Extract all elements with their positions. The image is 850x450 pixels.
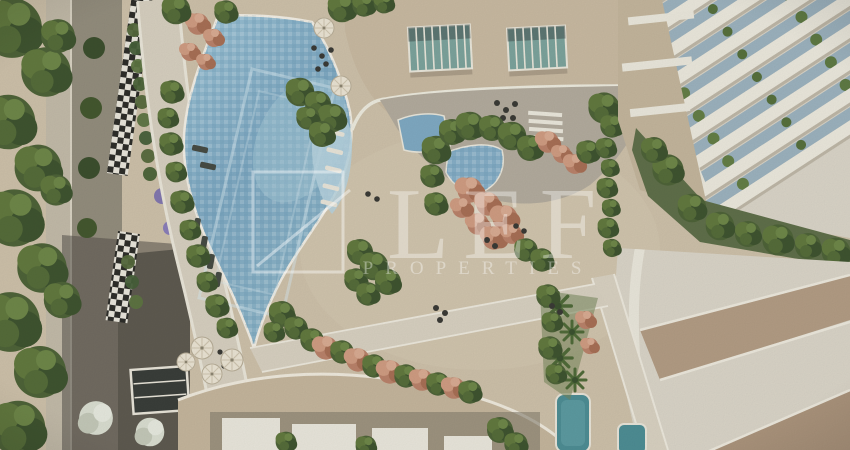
- aerial-render-image: LEF PROPERTIES: [0, 0, 850, 450]
- scene-svg: LEF PROPERTIES: [0, 0, 850, 450]
- watermark-tagline-text: PROPERTIES: [363, 258, 594, 279]
